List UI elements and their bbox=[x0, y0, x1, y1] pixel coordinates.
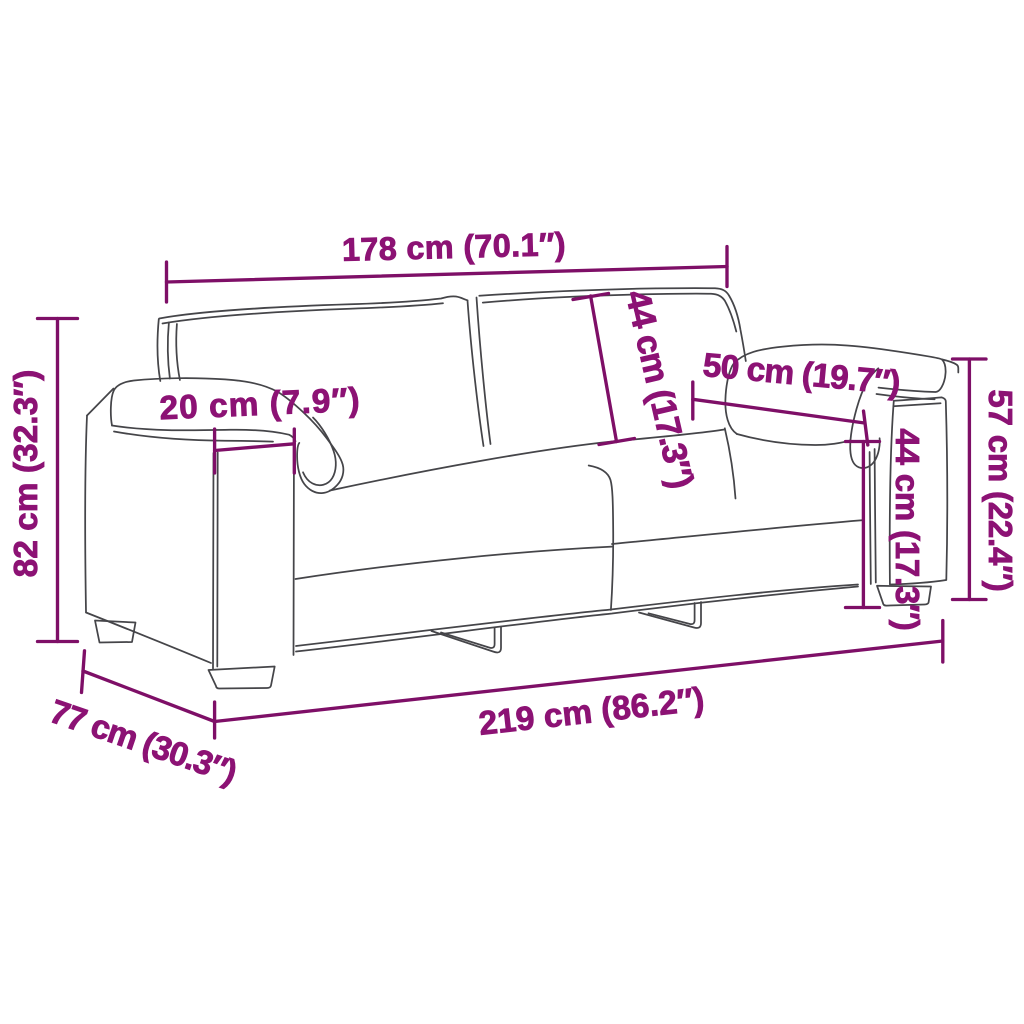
svg-text:178 cm (70.1″): 178 cm (70.1″) bbox=[341, 226, 566, 268]
svg-text:44 cm (17.3″): 44 cm (17.3″) bbox=[889, 428, 926, 630]
svg-text:82 cm (32.3″): 82 cm (32.3″) bbox=[8, 370, 45, 578]
svg-text:57 cm (22.4″): 57 cm (22.4″) bbox=[982, 389, 1019, 591]
